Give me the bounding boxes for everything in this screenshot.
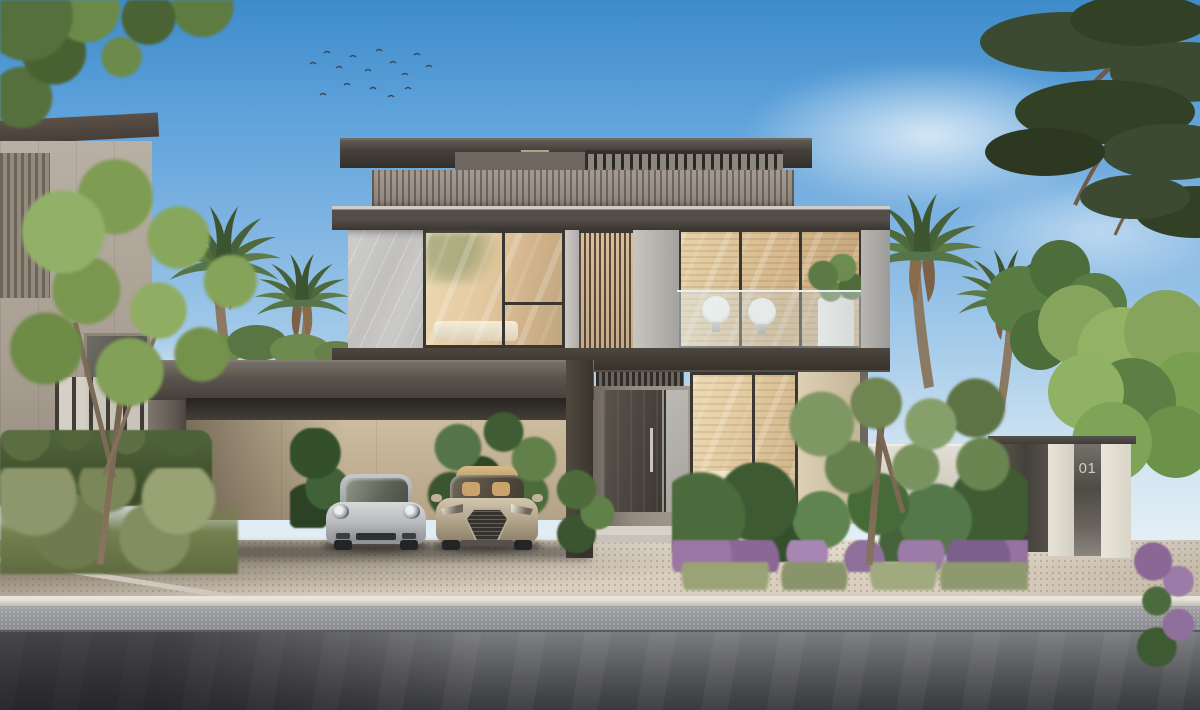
villa-exterior-scene: 01 (0, 0, 1200, 710)
car-wheel (400, 540, 418, 550)
upper-window-left (423, 230, 565, 348)
silver-sports-car (326, 474, 426, 552)
car-seat (462, 482, 480, 496)
louvered-parapet (372, 170, 794, 208)
entry-planting (552, 462, 622, 554)
tree-canopy-left (0, 150, 288, 442)
facade-pier (565, 230, 579, 348)
door-handle (650, 428, 653, 472)
gate-number-panel: 01 (1074, 444, 1101, 556)
car-headlight (403, 504, 420, 519)
second-floor-slab (332, 206, 890, 230)
car-intake (402, 533, 416, 539)
vertical-louver-screen (579, 230, 633, 354)
gate-stone-pier (1048, 444, 1074, 556)
overhanging-foliage (0, 0, 270, 150)
overhang-leaves (0, 0, 270, 150)
balcony-glass-railing (677, 290, 863, 350)
roofdeck-wall (455, 152, 587, 172)
sage-shrubs (0, 468, 238, 574)
facade-pier (633, 230, 679, 348)
car-intake (356, 533, 396, 540)
marble-pier-right (861, 230, 890, 350)
upper-window-left-glass (426, 233, 562, 345)
car-seat (492, 482, 510, 496)
gate-stone-pier (1101, 444, 1131, 558)
garden-groundcover (672, 562, 1028, 590)
car-wheel (334, 540, 352, 550)
champagne-sports-car (436, 466, 538, 552)
car-mirror (532, 494, 543, 502)
window-mullion (502, 230, 505, 348)
car-headlight (332, 504, 349, 519)
car-front-lip (460, 540, 514, 546)
flower-bed-right (1128, 535, 1200, 667)
car-wheel (514, 540, 532, 550)
car-wheel (442, 540, 460, 550)
gate-house-number: 01 (1074, 460, 1101, 477)
entry-transom-louver (596, 372, 684, 386)
olive-tree-canopy (772, 368, 1020, 528)
marble-pier-left (348, 230, 423, 350)
glass-reflection (426, 233, 562, 345)
car-intake (336, 533, 350, 539)
window-mullion (502, 302, 565, 305)
car-mirror (431, 494, 442, 502)
